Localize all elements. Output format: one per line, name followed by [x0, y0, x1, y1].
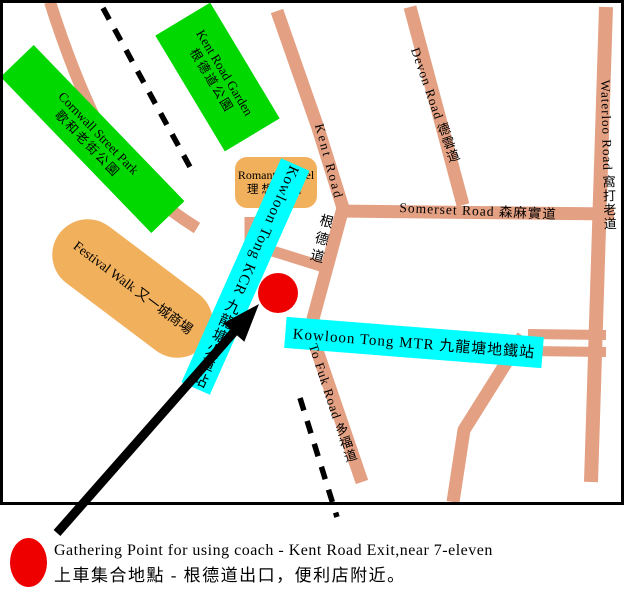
rail-dashed-line-north	[103, 8, 190, 167]
gathering-point-marker	[258, 273, 298, 313]
map-page: Cornwall Street Park 歌和老街公園 Kent Road Ga…	[0, 0, 624, 607]
overlay-layer	[0, 0, 624, 607]
pointer-arrow-shaft	[57, 332, 234, 533]
waterloo-road-label: Waterloo Road 窩打老道	[596, 80, 619, 232]
